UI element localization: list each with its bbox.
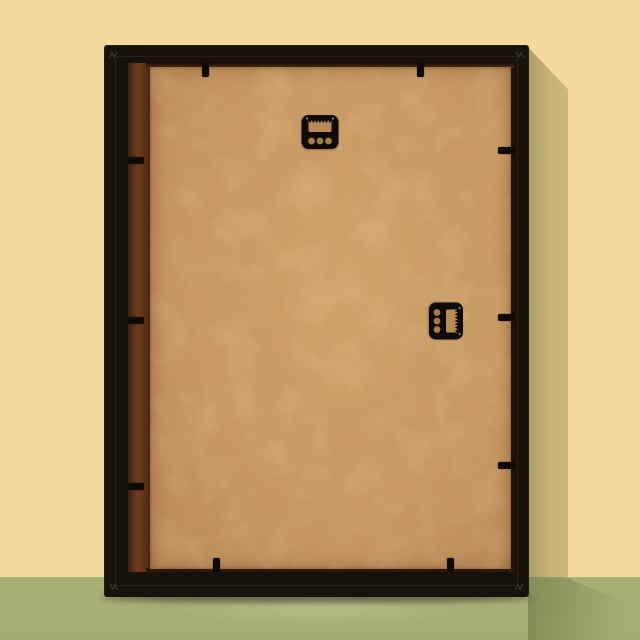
retainer-clip-left-3 [128,483,144,490]
retainer-clip-right-2 [498,314,514,321]
retainer-clip-bottom-2 [447,558,454,572]
corner-joint-mark [512,580,525,593]
retainer-clip-top-2 [417,63,424,77]
photo-backdrop [0,0,640,640]
sawtooth-hanger-side [426,301,466,341]
scene: { "scene": { "description": "Back of a b… [0,0,640,640]
retainer-clip-right-1 [498,147,514,154]
retainer-clip-bottom-1 [213,558,220,572]
sawtooth-hanger-top [300,112,340,152]
retainer-clip-right-3 [498,462,514,469]
retainer-clip-left-1 [128,157,144,164]
frame-cast-shadow-wall [528,47,568,577]
frame-floor-reflection [128,598,512,640]
retainer-clip-left-2 [128,317,144,324]
corner-joint-mark [513,49,526,62]
retainer-clip-top-1 [202,63,209,77]
picture-frame-back [104,45,529,597]
corner-joint-mark [108,580,121,593]
corner-joint-mark [107,49,120,62]
